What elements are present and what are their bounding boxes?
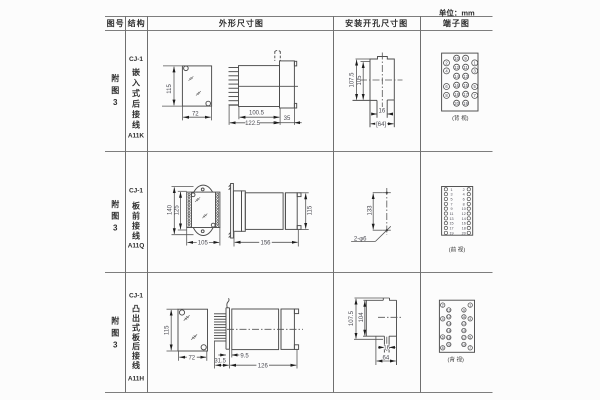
svg-text:9: 9 bbox=[463, 308, 465, 312]
svg-text:20: 20 bbox=[462, 231, 466, 235]
svg-text:115: 115 bbox=[167, 84, 173, 94]
svg-text:126: 126 bbox=[258, 363, 269, 369]
svg-text:14: 14 bbox=[462, 217, 466, 221]
svg-text:19: 19 bbox=[462, 343, 466, 347]
svg-text:后: 后 bbox=[132, 341, 140, 351]
svg-text:2: 2 bbox=[463, 188, 465, 192]
svg-text:2: 2 bbox=[442, 304, 444, 308]
svg-text:12: 12 bbox=[462, 212, 466, 216]
svg-text:10: 10 bbox=[447, 308, 451, 312]
svg-text:18: 18 bbox=[454, 92, 459, 97]
svg-text:1: 1 bbox=[469, 304, 471, 308]
svg-text:104: 104 bbox=[359, 312, 365, 323]
svg-text:100.5: 100.5 bbox=[249, 111, 265, 117]
svg-text:接: 接 bbox=[132, 351, 140, 361]
svg-text:线: 线 bbox=[132, 120, 140, 130]
svg-text:11: 11 bbox=[462, 315, 466, 319]
svg-text:3: 3 bbox=[469, 317, 471, 321]
svg-text:31.5: 31.5 bbox=[214, 358, 226, 364]
svg-text:6: 6 bbox=[463, 197, 465, 201]
svg-text:105: 105 bbox=[357, 75, 363, 86]
svg-text:156: 156 bbox=[260, 241, 271, 247]
svg-text:15: 15 bbox=[462, 329, 466, 333]
svg-text:1: 1 bbox=[474, 61, 477, 66]
svg-text:图: 图 bbox=[111, 212, 119, 221]
svg-text:133: 133 bbox=[368, 205, 374, 216]
svg-text:15: 15 bbox=[449, 222, 453, 226]
svg-text:20: 20 bbox=[454, 101, 459, 106]
svg-text:4: 4 bbox=[445, 69, 448, 74]
svg-text:16: 16 bbox=[383, 345, 390, 351]
svg-text:2-φ6: 2-φ6 bbox=[354, 237, 367, 243]
svg-text:122.5: 122.5 bbox=[245, 121, 261, 127]
svg-text:5: 5 bbox=[469, 335, 471, 339]
svg-text:17: 17 bbox=[462, 336, 466, 340]
svg-text:11: 11 bbox=[463, 65, 468, 70]
svg-text:9: 9 bbox=[450, 207, 452, 211]
svg-text:3: 3 bbox=[450, 193, 452, 197]
svg-text:单位：mm: 单位：mm bbox=[439, 8, 475, 18]
svg-text:板: 板 bbox=[132, 332, 141, 342]
svg-text:17: 17 bbox=[449, 227, 453, 231]
svg-text:13: 13 bbox=[462, 322, 466, 326]
svg-text:12: 12 bbox=[447, 315, 451, 319]
svg-text:7: 7 bbox=[450, 202, 452, 206]
svg-text:5: 5 bbox=[474, 84, 477, 89]
svg-text:17: 17 bbox=[463, 92, 468, 97]
svg-text:4: 4 bbox=[442, 317, 444, 321]
svg-text:图号: 图号 bbox=[107, 19, 125, 28]
svg-text:CJ-1: CJ-1 bbox=[129, 293, 143, 300]
svg-text:18: 18 bbox=[462, 227, 466, 231]
svg-text:115: 115 bbox=[308, 205, 314, 215]
svg-text:接: 接 bbox=[132, 221, 140, 231]
svg-text:A11Q: A11Q bbox=[128, 243, 145, 250]
svg-text:结构: 结构 bbox=[128, 18, 146, 28]
svg-text:端子图: 端子图 bbox=[443, 18, 470, 28]
svg-text:19: 19 bbox=[449, 231, 453, 235]
svg-text:A11K: A11K bbox=[128, 133, 145, 140]
svg-text:18: 18 bbox=[447, 336, 451, 340]
svg-text:(背 视): (背 视) bbox=[447, 356, 464, 364]
svg-text:前: 前 bbox=[132, 211, 140, 221]
svg-text:10: 10 bbox=[462, 207, 466, 211]
svg-text:16: 16 bbox=[379, 108, 386, 114]
svg-text:入: 入 bbox=[131, 79, 140, 88]
svg-text:72: 72 bbox=[192, 111, 199, 117]
svg-text:3: 3 bbox=[113, 224, 118, 233]
svg-text:(前 视): (前 视) bbox=[449, 246, 466, 254]
svg-text:附: 附 bbox=[111, 316, 119, 326]
svg-text:15: 15 bbox=[463, 83, 468, 88]
svg-text:13: 13 bbox=[463, 74, 468, 79]
svg-text:式: 式 bbox=[132, 323, 140, 333]
svg-text:A11H: A11H bbox=[128, 376, 145, 383]
svg-text:嵌: 嵌 bbox=[132, 67, 140, 77]
svg-text:8: 8 bbox=[442, 346, 444, 350]
svg-text:附: 附 bbox=[111, 199, 119, 209]
svg-text:式: 式 bbox=[132, 88, 140, 98]
svg-text:4: 4 bbox=[463, 193, 465, 197]
svg-text:9.5: 9.5 bbox=[240, 353, 249, 359]
svg-text:107.5: 107.5 bbox=[350, 72, 356, 88]
svg-text:16: 16 bbox=[447, 329, 451, 333]
svg-text:线: 线 bbox=[132, 231, 140, 241]
svg-text:1: 1 bbox=[450, 188, 452, 192]
svg-text:72: 72 bbox=[188, 356, 195, 362]
svg-text:线: 线 bbox=[132, 360, 140, 370]
svg-text:8: 8 bbox=[463, 202, 465, 206]
svg-text:接: 接 bbox=[132, 109, 140, 119]
svg-text:3: 3 bbox=[474, 69, 477, 74]
svg-text:115: 115 bbox=[164, 325, 170, 335]
svg-text:20: 20 bbox=[447, 343, 451, 347]
svg-text:16: 16 bbox=[454, 83, 459, 88]
svg-text:板: 板 bbox=[132, 201, 141, 211]
svg-text:3: 3 bbox=[113, 98, 118, 107]
svg-text:图: 图 bbox=[111, 329, 119, 338]
svg-text:7: 7 bbox=[469, 346, 471, 350]
svg-text:14: 14 bbox=[447, 322, 451, 326]
svg-text:105: 105 bbox=[198, 241, 209, 247]
svg-text:3: 3 bbox=[113, 341, 118, 350]
svg-text:9: 9 bbox=[464, 56, 467, 61]
svg-text:35: 35 bbox=[284, 116, 291, 122]
svg-text:13: 13 bbox=[449, 217, 453, 221]
svg-text:5: 5 bbox=[450, 197, 452, 201]
svg-text:125: 125 bbox=[174, 205, 180, 216]
svg-text:11: 11 bbox=[450, 212, 454, 216]
svg-text:凸: 凸 bbox=[132, 305, 140, 314]
svg-text:[64]: [64] bbox=[376, 122, 386, 128]
svg-text:图: 图 bbox=[111, 86, 119, 95]
svg-text:14: 14 bbox=[454, 74, 459, 79]
svg-text:64: 64 bbox=[383, 355, 390, 361]
svg-text:CJ-1: CJ-1 bbox=[129, 188, 143, 195]
svg-text:2: 2 bbox=[445, 61, 448, 66]
svg-text:12: 12 bbox=[454, 65, 459, 70]
svg-text:8: 8 bbox=[445, 93, 448, 98]
svg-text:6: 6 bbox=[442, 335, 444, 339]
svg-text:6: 6 bbox=[445, 84, 448, 89]
svg-text:出: 出 bbox=[132, 313, 140, 323]
svg-text:107.5: 107.5 bbox=[349, 310, 355, 326]
svg-text:16: 16 bbox=[462, 222, 466, 226]
svg-text:CJ-1: CJ-1 bbox=[129, 56, 143, 63]
svg-text:7: 7 bbox=[474, 93, 477, 98]
svg-text:(背 视): (背 视) bbox=[452, 114, 469, 122]
svg-text:19: 19 bbox=[463, 101, 468, 106]
svg-text:10: 10 bbox=[454, 56, 459, 61]
svg-text:附: 附 bbox=[111, 73, 119, 83]
svg-text:140: 140 bbox=[168, 204, 174, 215]
svg-text:安装开孔尺寸图: 安装开孔尺寸图 bbox=[345, 18, 408, 28]
svg-text:外形尺寸图: 外形尺寸图 bbox=[219, 18, 264, 28]
svg-text:后: 后 bbox=[132, 99, 140, 109]
